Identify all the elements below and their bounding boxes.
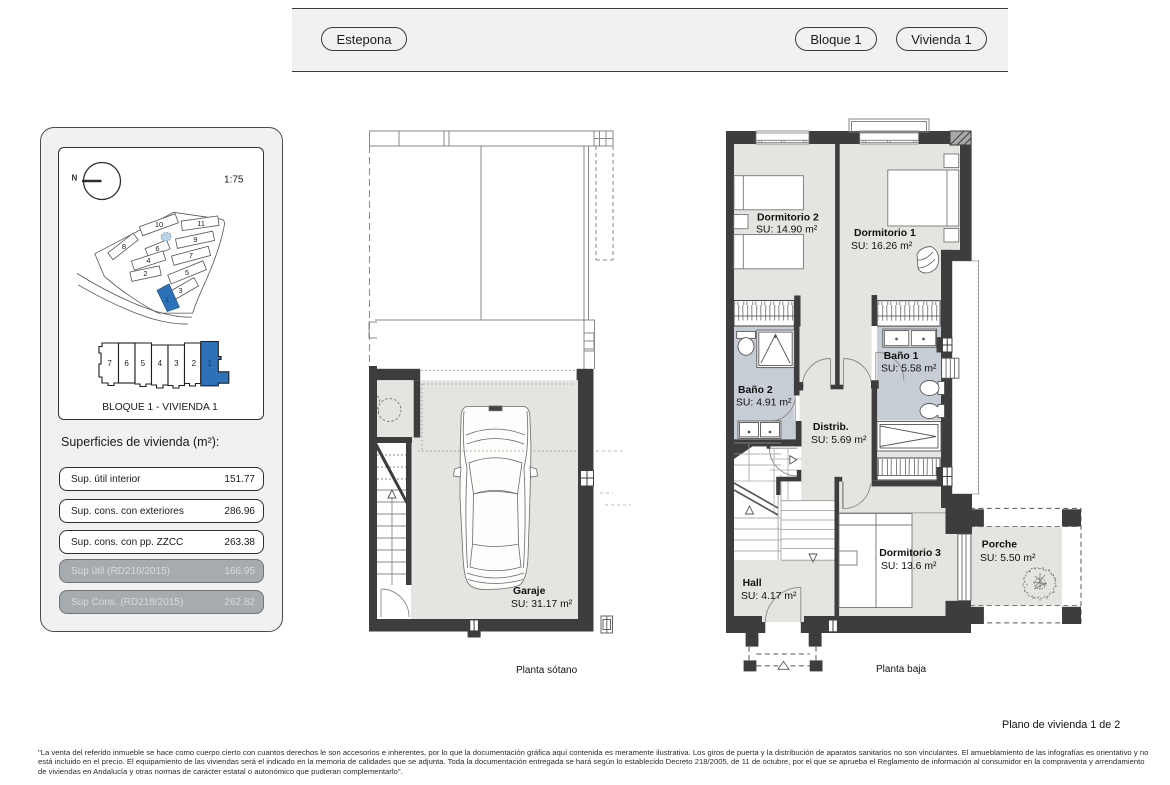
svg-text:SU: 14.90 m²: SU: 14.90 m²	[756, 225, 818, 236]
svg-text:Hall: Hall	[743, 578, 762, 589]
svg-text:2: 2	[143, 269, 147, 278]
svg-text:1:75: 1:75	[224, 175, 244, 186]
svg-text:4: 4	[146, 256, 150, 265]
svg-text:6: 6	[155, 244, 159, 253]
svg-text:6: 6	[124, 359, 129, 368]
svg-text:3: 3	[174, 359, 179, 368]
svg-text:1: 1	[208, 359, 213, 368]
svg-text:10: 10	[155, 220, 163, 229]
svg-text:7: 7	[107, 359, 112, 368]
svg-text:Distrib.: Distrib.	[813, 422, 849, 433]
svg-text:BLOQUE 1 - VIVIENDA 1: BLOQUE 1 - VIVIENDA 1	[102, 402, 218, 413]
svg-text:1: 1	[165, 295, 169, 304]
svg-text:SU: 5.69 m²: SU: 5.69 m²	[811, 435, 867, 446]
svg-text:Dormitorio 2: Dormitorio 2	[757, 213, 819, 224]
svg-text:SU: 31.17 m²: SU: 31.17 m²	[511, 599, 573, 610]
svg-text:Porche: Porche	[982, 540, 1017, 551]
svg-text:SU: 16.26 m²: SU: 16.26 m²	[851, 241, 913, 252]
svg-text:Baño 1: Baño 1	[884, 351, 919, 362]
svg-text:5: 5	[141, 359, 146, 368]
svg-text:SU: 4.91 m²: SU: 4.91 m²	[736, 398, 792, 409]
svg-text:2: 2	[192, 359, 197, 368]
svg-text:N: N	[72, 174, 78, 183]
svg-text:11: 11	[197, 219, 205, 228]
svg-text:4: 4	[158, 359, 163, 368]
svg-text:SU: 5.50 m²: SU: 5.50 m²	[980, 553, 1036, 564]
svg-text:SU: 13.6 m²: SU: 13.6 m²	[881, 561, 937, 572]
svg-text:Dormitorio 1: Dormitorio 1	[854, 228, 916, 239]
svg-text:SU: 5.58 m²: SU: 5.58 m²	[881, 364, 937, 375]
svg-text:8: 8	[122, 242, 126, 251]
svg-text:5: 5	[185, 268, 189, 277]
svg-text:Dormitorio 3: Dormitorio 3	[879, 548, 941, 559]
svg-text:Baño 2: Baño 2	[738, 385, 773, 396]
svg-text:Garaje: Garaje	[513, 586, 546, 597]
svg-text:SU: 4.17 m²: SU: 4.17 m²	[741, 591, 797, 602]
svg-text:7: 7	[189, 251, 193, 260]
svg-text:9: 9	[193, 235, 197, 244]
svg-text:3: 3	[178, 286, 182, 295]
